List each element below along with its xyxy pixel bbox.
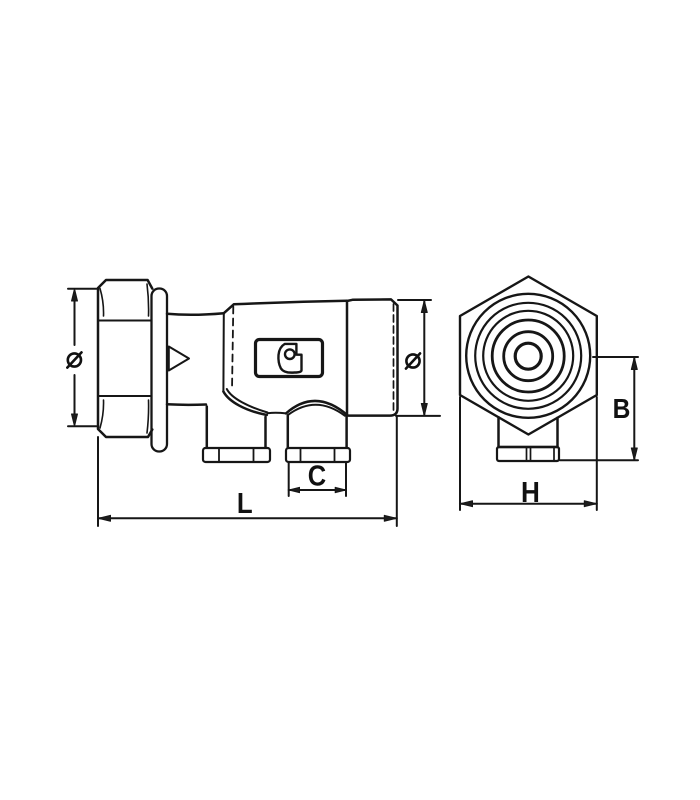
svg-text:B: B (613, 393, 631, 425)
svg-text:H: H (521, 476, 540, 509)
svg-text:L: L (237, 487, 253, 520)
svg-text:C: C (308, 460, 326, 492)
